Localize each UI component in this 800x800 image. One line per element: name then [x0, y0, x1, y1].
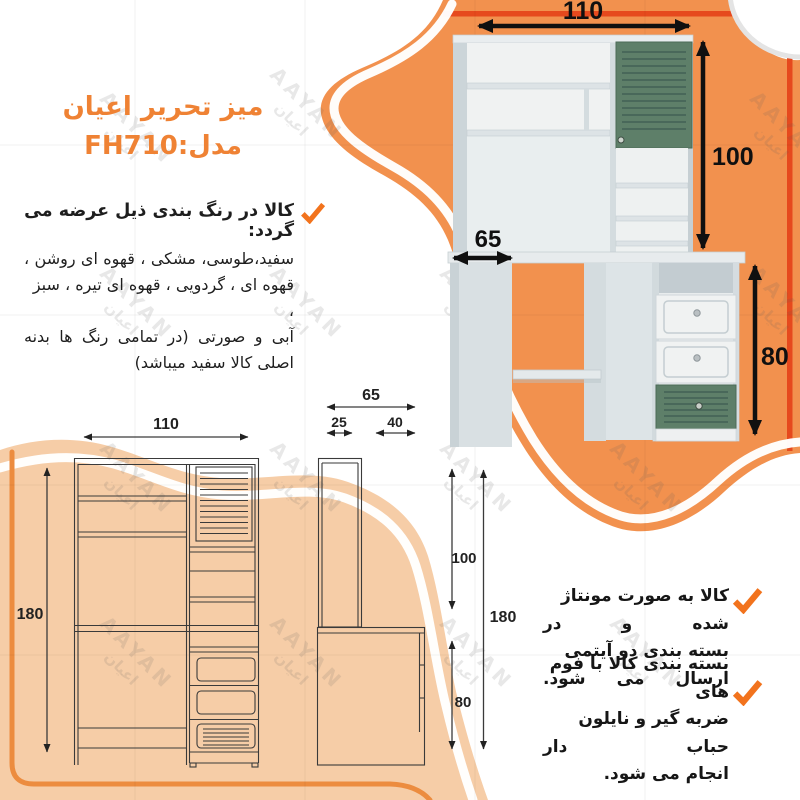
watermark: AAYANاعيان: [581, 251, 698, 368]
infographic-canvas: AAYANاعيان AAYANاعيان AAYANاعيان AAYANاع…: [0, 0, 800, 800]
product-photo: [448, 35, 745, 447]
light-orange-blob: [0, 440, 488, 800]
check-icon: [732, 679, 763, 710]
green-cabinet-door: [616, 42, 692, 148]
product-title: میز تحریر اعیان مدل:FH710: [52, 88, 274, 166]
bullet-packaging: بسته بندی کالا با فوم های ضربه گیر و نای…: [543, 651, 729, 789]
photo-dim-desk-height-label: 80: [761, 343, 789, 371]
corner-notch: [730, 0, 800, 57]
watermark: AAYANاعيان: [581, 426, 698, 543]
side-dim-hutch-height-label: 100: [451, 550, 476, 567]
color-note-line: آبی و صورتی (در تمامی رنگ ها بدنه: [24, 324, 294, 350]
photo-dim-hutch-height-label: 100: [712, 143, 754, 171]
check-icon: [300, 202, 326, 228]
watermark: AAYANاعيان: [71, 601, 188, 718]
accent-stripe-top: [443, 11, 735, 17]
side-dim-hutch-depth-label: 25: [331, 414, 347, 430]
color-note-heading: کالا در رنگ بندی ذیل عرضه می گردد:: [24, 201, 294, 241]
product-name: میز تحریر اعیان: [52, 88, 274, 127]
watermark: AAYANاعيان: [241, 426, 358, 543]
inset-accent-stroke: [12, 452, 430, 800]
photo-dimensions: [454, 26, 755, 434]
color-note-line: سفید،طوسی، مشکی ، قهوه ای روشن ،: [24, 246, 294, 272]
watermark: AAYANاعيان: [411, 601, 528, 718]
accent-stripe-right: [787, 55, 793, 451]
green-drawer: [656, 385, 736, 429]
bullet-line: انجام می شود.: [543, 761, 729, 789]
front-dim-height-label: 180: [17, 606, 44, 623]
watermark: AAYANاعيان: [71, 426, 188, 543]
color-note-line: قهوه ای ، گردویی ، قهوه ای تیره ، سبز ،: [24, 272, 294, 324]
side-dim-extra-depth-label: 40: [387, 414, 403, 430]
front-dim-width-label: 110: [153, 416, 179, 433]
check-icon: [732, 587, 763, 618]
photo-dim-width-label: 110: [563, 0, 603, 25]
front-view-drawing: [47, 437, 259, 767]
color-note-line: اصلی کالا سفید میباشد): [24, 350, 294, 376]
watermark: AAYANاعيان: [721, 76, 800, 193]
watermark: AAYANاعيان: [721, 251, 800, 368]
door-knob: [618, 137, 624, 143]
bullet-line: ضربه گیر و نایلون حباب دار: [543, 706, 729, 761]
bullet-line: بسته بندی کالا با فوم های: [543, 651, 729, 706]
watermark: AAYANاعيان: [581, 76, 698, 193]
watermark: AAYANاعيان: [241, 601, 358, 718]
color-note: کالا در رنگ بندی ذیل عرضه می گردد: سفید،…: [24, 201, 294, 376]
product-model: مدل:FH710: [52, 127, 274, 166]
watermark: AAYANاعيان: [411, 251, 528, 368]
side-dim-depth-label: 65: [362, 387, 380, 404]
drawer-pedestal: [653, 263, 739, 441]
side-view-drawing: [318, 407, 484, 765]
side-dim-desk-height-label: 80: [455, 694, 472, 711]
side-dim-height-label: 180: [490, 609, 517, 626]
watermark: AAYANاعيان: [411, 426, 528, 543]
orange-blob: [321, 0, 800, 531]
bullet-line: کالا به صورت مونتاژ شده و در: [543, 583, 729, 638]
photo-dim-depth-label: 65: [475, 226, 502, 253]
